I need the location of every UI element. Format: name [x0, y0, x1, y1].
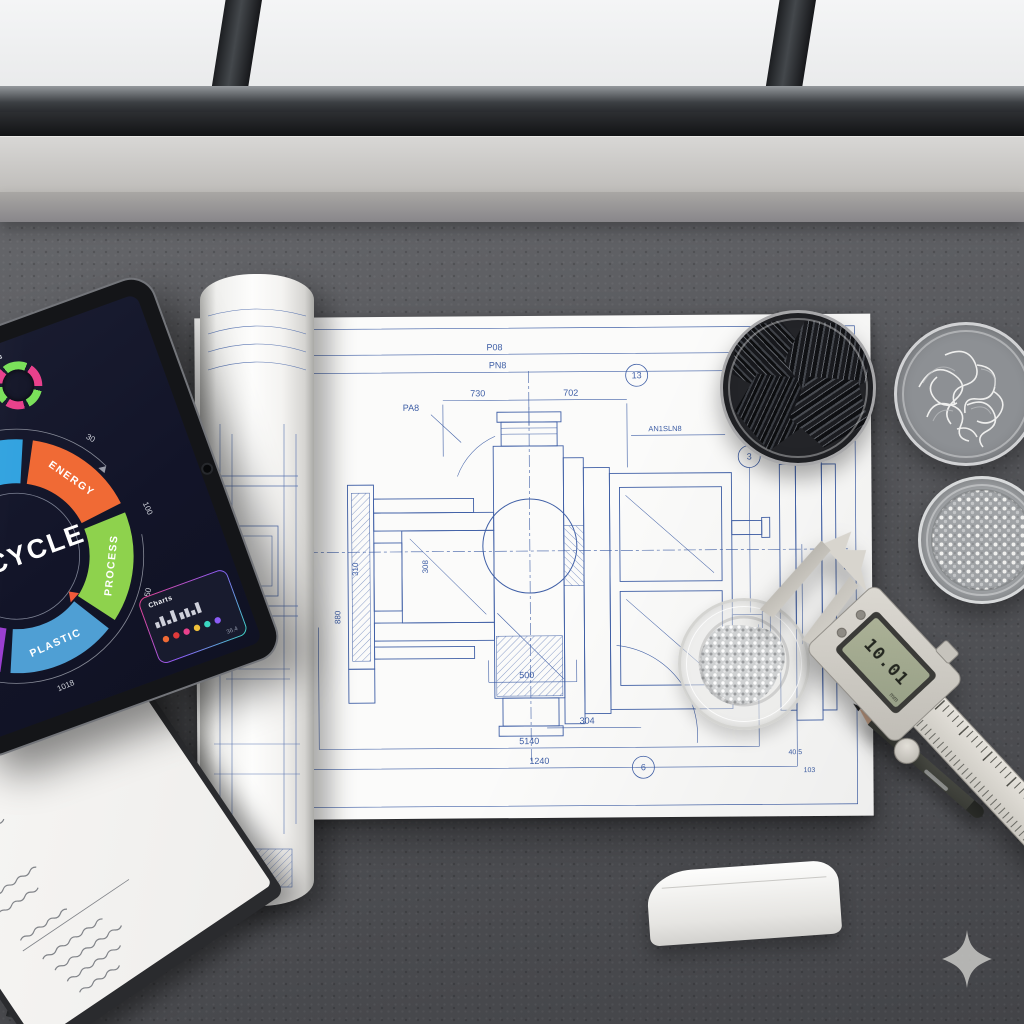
caliper-lcd-frame: 10.01 mm — [834, 610, 938, 715]
swarf-curls — [897, 325, 1024, 463]
dim-label: 730 — [470, 388, 485, 398]
recycle-wheel-chart: REUSE RECYCLE ENERGY PROCESS PLASTIC SOR… — [0, 364, 209, 740]
dim-label: P08 — [486, 342, 502, 352]
window-rail — [0, 112, 1024, 136]
legend-dot — [214, 616, 222, 624]
arc-tick-label: 1018 — [56, 678, 76, 693]
legend-dot — [193, 624, 201, 632]
bowl-black-composite-shards — [720, 310, 876, 466]
wheel-center-label: RECYCLE — [0, 518, 89, 595]
dim-label: 308 — [421, 560, 430, 574]
legend-dot — [162, 635, 170, 643]
caliper-unit-label: mm — [888, 692, 899, 703]
legend-dot — [172, 631, 180, 639]
paper-roll-end — [646, 859, 843, 946]
caliper-reading: 10.01 — [859, 635, 912, 690]
bowl-metal-swarf — [894, 322, 1024, 466]
dim-label: 1240 — [529, 756, 549, 766]
pellet-fill — [921, 479, 1024, 601]
dim-label: PA8 — [403, 403, 419, 413]
dim-label: 103 — [804, 767, 816, 774]
window-sill-edge — [0, 192, 1024, 222]
dim-label: 702 — [563, 388, 578, 398]
dim-label: PN8 — [489, 360, 507, 370]
stats-card-footer: 36.4 — [226, 626, 239, 636]
arc-tick-label: 100 — [141, 500, 155, 516]
callout-balloon: 13 — [632, 370, 642, 380]
callout-balloon: 6 — [641, 762, 646, 772]
desk-scene: P08 PN8 730 702 PA8 AN1SLN8 500 304 5140… — [0, 0, 1024, 1024]
bowl-metal-pellets — [918, 476, 1024, 604]
dim-label: 40.5 — [788, 749, 802, 756]
callout-balloon: 3 — [747, 451, 752, 461]
wheel-segment — [0, 454, 26, 504]
sparkle-icon — [938, 930, 996, 988]
arc-tick-label: 30 — [85, 432, 98, 444]
dim-label: 310 — [351, 562, 360, 576]
dim-label: 500 — [519, 670, 534, 680]
window-sill — [0, 136, 1024, 193]
dim-label: 880 — [333, 610, 342, 624]
window-band — [0, 0, 1024, 222]
skylight-glass — [0, 0, 1024, 92]
caliper-lcd: 10.01 mm — [841, 617, 931, 708]
wheel-segment — [9, 615, 96, 658]
wheel-segment — [0, 590, 3, 667]
legend-dot — [203, 620, 211, 628]
legend-dot — [183, 628, 191, 636]
arc-arrow — [98, 465, 108, 474]
tablet-camera — [202, 464, 212, 474]
dim-label: 304 — [580, 716, 595, 726]
dim-label: 5140 — [519, 736, 539, 746]
dim-label: AN1SLN8 — [648, 424, 681, 433]
